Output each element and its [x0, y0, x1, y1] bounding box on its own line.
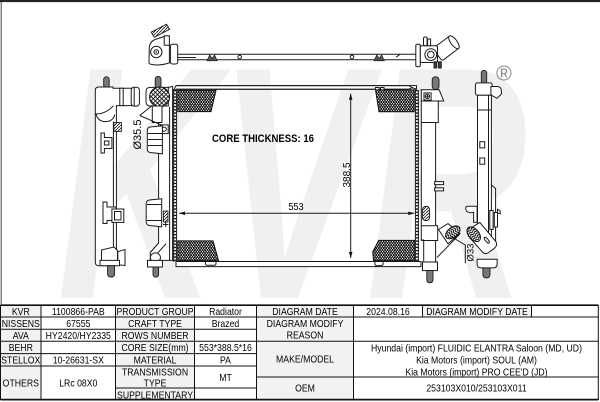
svg-text:AVA: AVA [13, 330, 30, 341]
svg-text:2024.08.16: 2024.08.16 [366, 306, 409, 317]
svg-text:BEHR: BEHR [9, 343, 33, 354]
svg-text:ROWS NUMBER: ROWS NUMBER [121, 330, 188, 341]
svg-text:67555: 67555 [66, 318, 90, 329]
svg-text:Radiator: Radiator [209, 306, 242, 317]
svg-text:253103X010/253103X011: 253103X010/253103X011 [426, 383, 526, 394]
svg-text:Hyundai (import) FLUIDIC ELANT: Hyundai (import) FLUIDIC ELANTRA Saloon … [371, 343, 582, 354]
svg-text:KVR: KVR [12, 306, 30, 317]
svg-text:OEM: OEM [295, 383, 315, 394]
svg-text:TYPE: TYPE [144, 378, 167, 389]
svg-text:LRc 08X0: LRc 08X0 [59, 378, 97, 389]
svg-text:®: ® [496, 62, 512, 86]
svg-text:SUPPLEMENTARY: SUPPLEMENTARY [117, 390, 194, 401]
svg-text:MATERIAL: MATERIAL [134, 355, 177, 366]
svg-text:PRODUCT GROUP: PRODUCT GROUP [116, 306, 193, 317]
svg-text:Kia Motors (import) SOUL (AM): Kia Motors (import) SOUL (AM) [416, 355, 537, 366]
svg-text:PA: PA [220, 355, 232, 366]
svg-text:Brazed: Brazed [212, 318, 240, 329]
svg-text:CRAFT TYPE: CRAFT TYPE [128, 318, 182, 329]
svg-text:TRANSMISSION: TRANSMISSION [122, 367, 188, 378]
svg-text:Ø33: Ø33 [466, 244, 477, 262]
svg-text:REASON: REASON [287, 330, 324, 341]
svg-text:CORE THICKNESS: 16: CORE THICKNESS: 16 [212, 133, 314, 145]
svg-text:MAKE/MODEL: MAKE/MODEL [276, 354, 334, 365]
svg-text:OTHERS: OTHERS [3, 378, 39, 389]
svg-text:DIAGRAM MODIFY: DIAGRAM MODIFY [267, 318, 344, 329]
svg-text:553*388.5*16: 553*388.5*16 [199, 343, 252, 354]
svg-text:DIAGRAM DATE: DIAGRAM DATE [272, 306, 337, 317]
svg-text:Ø35.5: Ø35.5 [132, 120, 144, 150]
svg-text:DIAGRAM MODIFY DATE: DIAGRAM MODIFY DATE [426, 306, 528, 317]
svg-text:MT: MT [219, 372, 232, 383]
svg-text:HY2420/HY2335: HY2420/HY2335 [46, 330, 111, 341]
svg-text:NISSENS: NISSENS [2, 318, 40, 329]
svg-text:388.5: 388.5 [342, 162, 353, 187]
svg-text:1100866-PAB: 1100866-PAB [52, 306, 105, 317]
svg-text:Kia Motors (import) PRO CEE'D: Kia Motors (import) PRO CEE'D (JD) [405, 367, 547, 378]
svg-text:553: 553 [288, 201, 304, 213]
svg-text:STELLOX: STELLOX [1, 355, 41, 366]
svg-text:CORE SIZE(mm): CORE SIZE(mm) [121, 343, 188, 354]
svg-text:10-26631-SX: 10-26631-SX [53, 355, 105, 366]
